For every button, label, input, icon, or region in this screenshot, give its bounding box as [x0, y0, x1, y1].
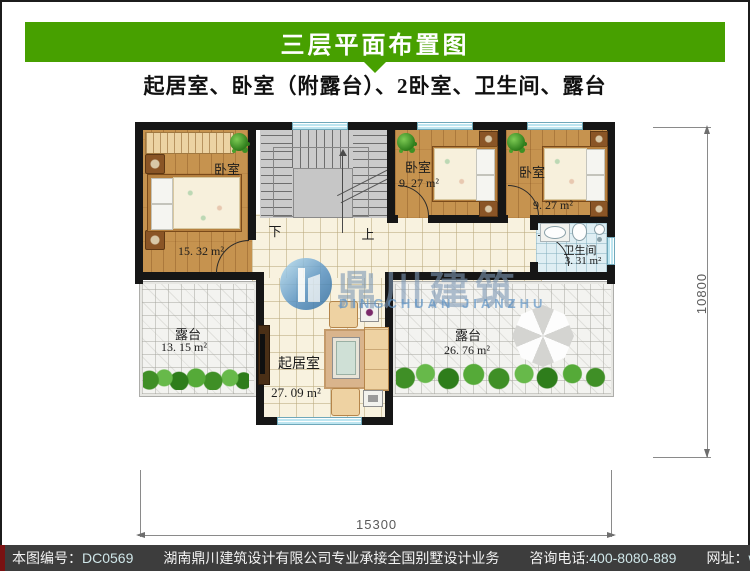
nightstand [479, 131, 498, 147]
room-area: 26. 76 m² [444, 343, 490, 358]
drawing-code: DC0569 [82, 550, 133, 566]
footer-red-strip [0, 545, 5, 571]
dim-arrow-right [607, 532, 616, 538]
dim-ext-left [140, 470, 141, 537]
room-area: 9. 27 m² [533, 198, 573, 213]
wall-bed1-right-upper [248, 130, 256, 240]
coffee-table-glass [336, 341, 356, 375]
wall-living-bottom-b [362, 417, 393, 425]
floorplan-page: 三层平面布置图 起居室、卧室（附露台）、2卧室、卫生间、露台 [0, 0, 750, 571]
drawing-code-label: 本图编号： [12, 548, 82, 568]
room-label: 起居室 [278, 353, 320, 373]
bed-mattress [173, 177, 240, 229]
pillow [151, 178, 173, 204]
potted-plant [397, 133, 415, 151]
tv [260, 334, 265, 374]
dim-line-bottom [138, 535, 614, 536]
room-area: 27. 09 m² [271, 385, 321, 401]
room-area: 13. 15 m² [161, 340, 207, 355]
dim-ext-top2 [653, 127, 711, 128]
room-label: 卧室 [519, 162, 545, 181]
sink [544, 226, 566, 239]
window-bedroom-right [527, 122, 583, 130]
room-area: 15. 32 m² [178, 244, 224, 259]
page-title: 三层平面布置图 [281, 25, 470, 60]
dim-ext-right [611, 470, 612, 537]
phone-number: 400-8080-889 [589, 550, 676, 566]
window-bathroom [607, 237, 615, 265]
pillow [586, 175, 605, 201]
side-table [363, 390, 383, 407]
page-subtitle: 起居室、卧室（附露台）、2卧室、卫生间、露台 [0, 70, 750, 100]
potted-plant [230, 133, 248, 151]
watermark-en: DINGCHUAN JIANZHU [339, 296, 546, 311]
title-bar: 三层平面布置图 [25, 22, 725, 62]
website-label: 网址： [706, 548, 748, 568]
armchair [331, 388, 360, 416]
room-label: 露台 [455, 325, 481, 344]
wall-bed2-bed3 [498, 130, 506, 218]
sofa [364, 327, 389, 391]
wall-beds-bottom-a [387, 215, 398, 223]
dim-height-label: 10800 [694, 273, 709, 314]
dim-arrow-down [704, 449, 710, 458]
stair-direction-arrow [339, 149, 347, 156]
wall-living-bottom-a [256, 417, 277, 425]
dim-width-label: 15300 [356, 517, 397, 532]
footer-bar: 本图编号： DC0569 湖南鼎川建筑设计有限公司专业承接全国别墅设计业务 咨询… [0, 545, 750, 571]
room-area: 3. 31 m² [565, 255, 602, 267]
nightstand [145, 230, 165, 250]
bed-mattress [434, 148, 477, 200]
pillow [586, 149, 605, 175]
terrace-left-bushes [143, 368, 249, 390]
stair-up-label: 上 [361, 224, 374, 243]
window-bedroom-mid [417, 122, 473, 130]
company-text: 湖南鼎川建筑设计有限公司专业承接全国别墅设计业务 [163, 548, 499, 568]
watermark-logo [280, 258, 332, 310]
wall-bed1-bottom [135, 272, 264, 280]
stair-direction-line [342, 153, 343, 233]
pillow [151, 204, 173, 230]
shower-head [594, 224, 605, 235]
pillow [476, 175, 495, 201]
dim-ext-bottom2 [653, 457, 711, 458]
nightstand [479, 201, 498, 217]
dim-arrow-left [136, 532, 145, 538]
nightstand [590, 131, 608, 147]
window-living-room [277, 417, 362, 425]
wall-left [135, 130, 143, 284]
pillow [476, 149, 495, 175]
dim-arrow-up [704, 125, 710, 134]
room-label: 卧室 [214, 159, 240, 178]
toilet [572, 223, 587, 241]
window-stairwell [292, 122, 348, 130]
phone-label: 咨询电话: [529, 548, 589, 568]
stair-down-label: 下 [268, 221, 281, 240]
wall-stair-bed2 [387, 130, 395, 218]
nightstand [145, 154, 165, 174]
room-area: 9. 27 m² [399, 176, 439, 191]
room-label: 卧室 [405, 157, 431, 176]
nightstand [590, 201, 608, 217]
wardrobe [145, 132, 234, 154]
bed-mattress [544, 148, 587, 200]
wall-bath-left-top [530, 215, 538, 230]
potted-plant [507, 133, 525, 151]
terrace-right-bushes [396, 360, 606, 390]
